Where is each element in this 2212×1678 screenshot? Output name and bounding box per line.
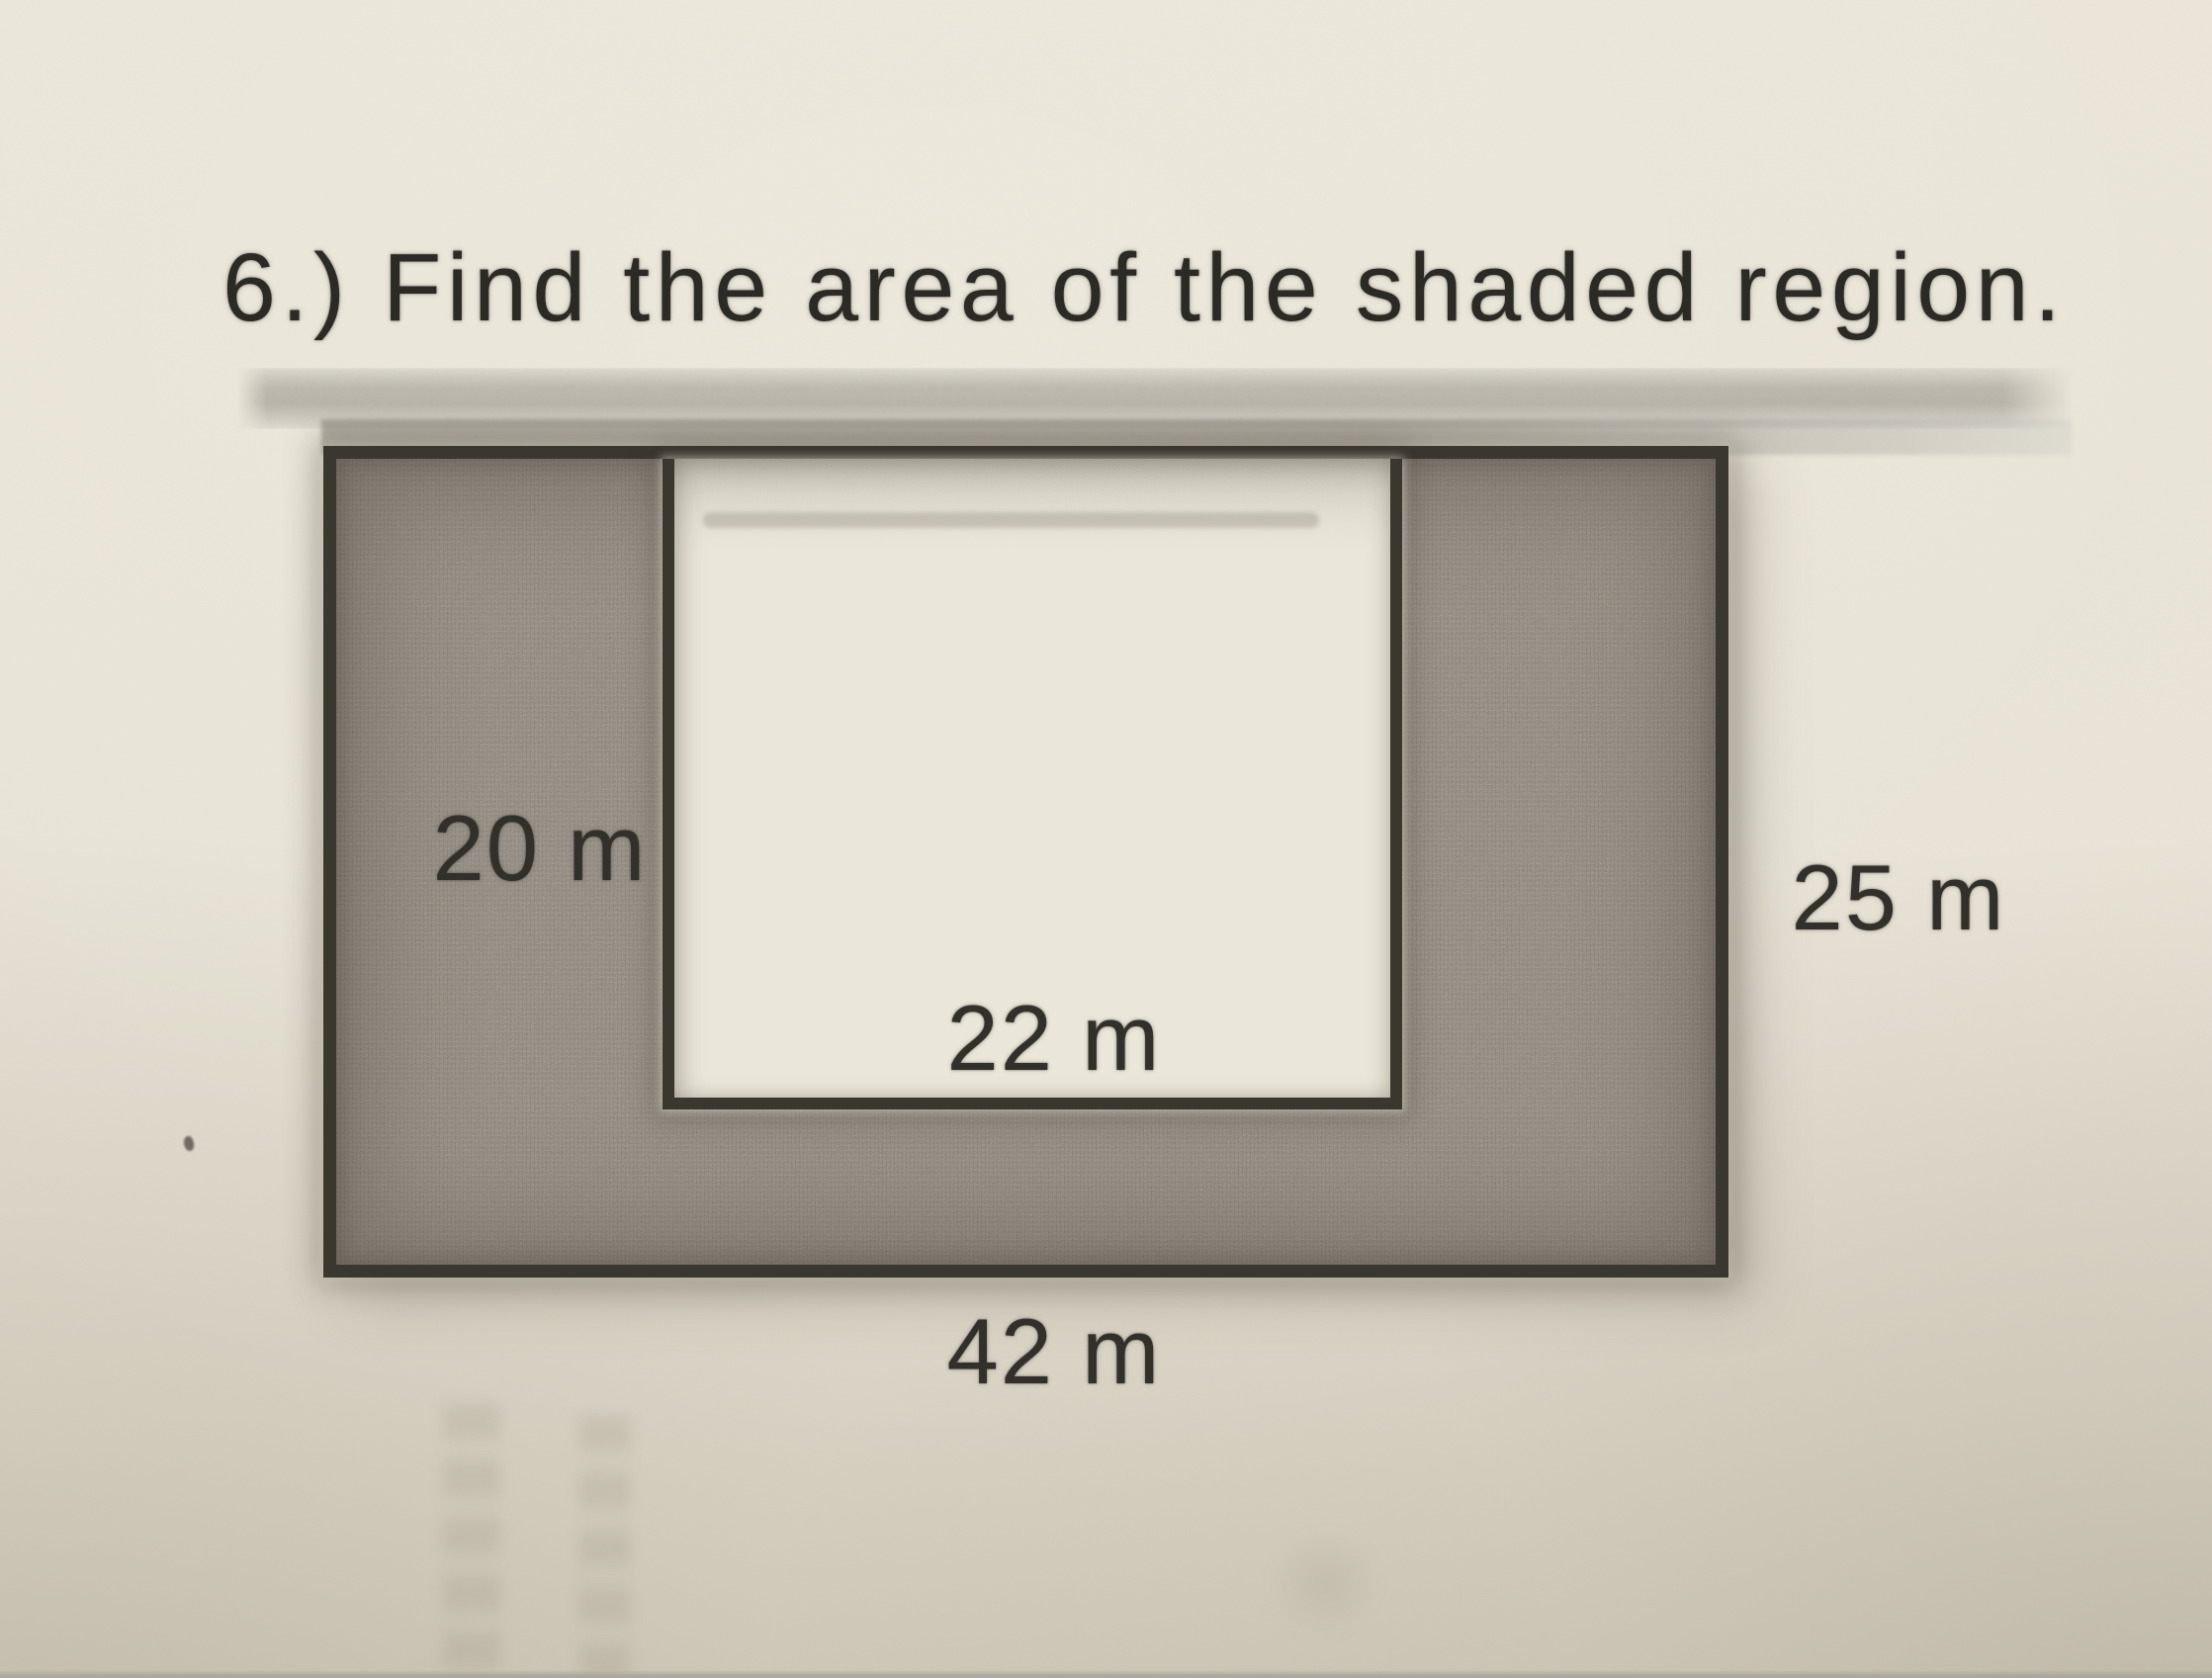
bleedthrough-ghost-mark [1268, 1528, 1381, 1638]
cutout-top-speckle [674, 459, 1390, 554]
cutout-smudge-streak [703, 512, 1319, 528]
dimension-label-inner-height: 20 m [433, 802, 648, 895]
dimension-label-outer-height: 25 m [1792, 851, 2006, 944]
problem-title: 6.) Find the area of the shaded region. [222, 239, 2067, 335]
bleedthrough-ghost-text-right [579, 1416, 631, 1678]
stray-ink-dot [182, 1135, 196, 1152]
photo-bottom-edge-shadow [0, 1670, 2212, 1678]
worksheet-photo: 6.) Find the area of the shaded region. [0, 0, 2212, 1678]
bleedthrough-ghost-text-left [443, 1404, 500, 1678]
dimension-label-outer-width: 42 m [947, 1305, 1162, 1398]
dimension-label-inner-width: 22 m [947, 992, 1162, 1085]
title-underline-smudge [237, 368, 2073, 429]
